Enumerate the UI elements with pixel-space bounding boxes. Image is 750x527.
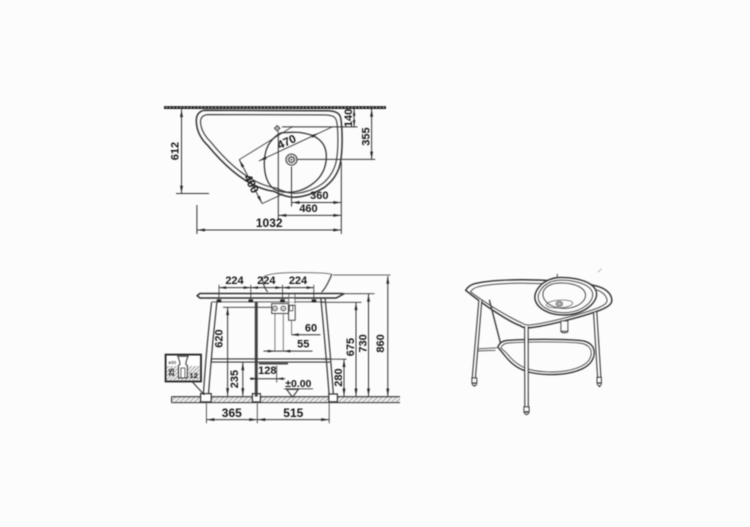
svg-text:620: 620 bbox=[213, 329, 225, 347]
svg-text:355: 355 bbox=[360, 127, 372, 145]
svg-text:224: 224 bbox=[289, 275, 308, 287]
svg-text:±0.00: ±0.00 bbox=[285, 378, 311, 390]
svg-text:280: 280 bbox=[333, 368, 345, 386]
svg-text:675: 675 bbox=[345, 338, 357, 356]
svg-text:460: 460 bbox=[299, 203, 317, 215]
svg-text:60: 60 bbox=[305, 322, 317, 334]
svg-text:25: 25 bbox=[169, 368, 176, 376]
svg-text:12: 12 bbox=[189, 371, 197, 380]
svg-text:235: 235 bbox=[229, 370, 241, 388]
svg-text:730: 730 bbox=[357, 334, 369, 352]
svg-text:860: 860 bbox=[375, 334, 387, 352]
svg-text:360: 360 bbox=[310, 190, 328, 202]
svg-text:515: 515 bbox=[283, 406, 303, 420]
svg-text:128: 128 bbox=[258, 365, 276, 377]
svg-text:400: 400 bbox=[241, 173, 261, 196]
svg-text:55: 55 bbox=[297, 339, 309, 351]
svg-text:224: 224 bbox=[257, 275, 276, 287]
svg-text:224: 224 bbox=[225, 275, 244, 287]
svg-text:612: 612 bbox=[169, 142, 181, 160]
svg-text:470: 470 bbox=[276, 133, 298, 152]
svg-text:1032: 1032 bbox=[256, 216, 283, 230]
svg-text:140: 140 bbox=[343, 109, 355, 127]
svg-text:365: 365 bbox=[222, 406, 242, 420]
svg-text:ø30: ø30 bbox=[168, 360, 176, 365]
